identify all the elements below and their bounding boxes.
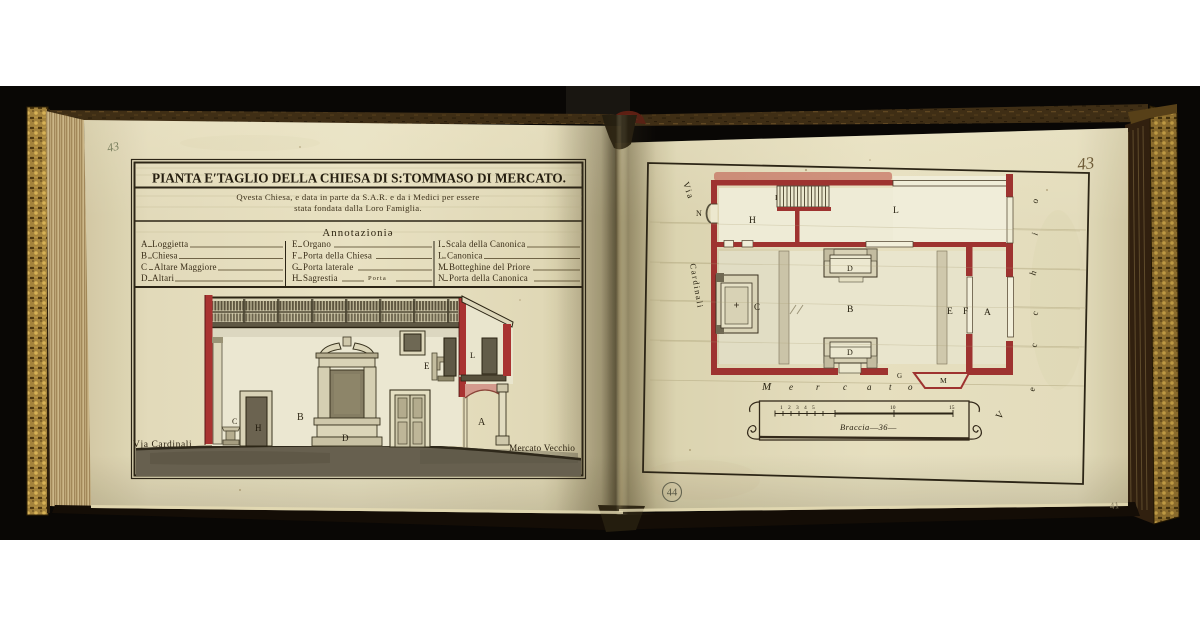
svg-text:M: M (940, 376, 947, 385)
svg-text:M: M (438, 262, 446, 272)
svg-text:H: H (255, 423, 262, 433)
svg-text:N: N (438, 273, 445, 283)
svg-text:2: 2 (788, 405, 791, 411)
svg-text:Porta della Chiesa: Porta della Chiesa (303, 251, 372, 261)
svg-text:M: M (761, 381, 772, 393)
svg-text:Scala della Canonica: Scala della Canonica (446, 239, 525, 249)
svg-text:stata fondata dalla Loro Famig: stata fondata dalla Loro Famiglia. (294, 203, 422, 213)
svg-text:c: c (843, 382, 847, 392)
svg-text:H: H (292, 273, 299, 283)
svg-text:5: 5 (812, 405, 815, 411)
svg-text:L: L (893, 206, 899, 216)
svg-text:B: B (847, 305, 853, 315)
svg-text:43: 43 (1076, 153, 1095, 174)
svg-text:Altari: Altari (152, 273, 174, 283)
svg-text:B: B (141, 251, 147, 261)
svg-text:Chiesa: Chiesa (152, 251, 178, 261)
svg-text:Vja Cardinali: Vja Cardinali (133, 440, 192, 450)
svg-text:G: G (897, 372, 902, 380)
svg-text:G: G (292, 262, 299, 272)
svg-text:A: A (141, 239, 148, 249)
svg-text:I: I (438, 239, 441, 249)
svg-text:1: 1 (780, 405, 783, 411)
svg-text:C: C (232, 417, 237, 426)
svg-text:A: A (984, 308, 991, 318)
svg-text:B: B (297, 412, 304, 423)
svg-text:15: 15 (949, 405, 955, 411)
svg-text:Braccia―36―: Braccia―36― (840, 422, 897, 432)
svg-text:4: 4 (804, 405, 807, 411)
svg-text:41: 41 (1109, 501, 1120, 512)
svg-text:E: E (947, 307, 953, 317)
svg-text:E: E (424, 361, 430, 371)
svg-text:Canonica: Canonica (447, 251, 483, 261)
svg-text:3: 3 (796, 405, 799, 411)
svg-text:Loggietta: Loggietta (152, 239, 188, 249)
svg-text:D: D (141, 273, 148, 283)
svg-text:N: N (696, 209, 702, 218)
svg-text:Qvesta Chiesa, e data in parte: Qvesta Chiesa, e data in parte da S.A.R.… (236, 192, 479, 202)
svg-text:Altare Maggiore: Altare Maggiore (154, 262, 217, 272)
svg-text:C: C (141, 262, 147, 272)
svg-text:Mercato Vecchio: Mercato Vecchio (509, 444, 575, 454)
svg-text:F: F (292, 251, 297, 261)
svg-text:10: 10 (890, 405, 896, 411)
svg-text:Organo: Organo (303, 239, 331, 249)
svg-text:C: C (754, 302, 760, 312)
svg-text:A: A (478, 417, 486, 428)
svg-text:PIANTA E′TAGLIO DELLA CHIESA D: PIANTA E′TAGLIO DELLA CHIESA DI S:TOMMAS… (152, 171, 566, 186)
svg-text:Porta: Porta (368, 275, 387, 282)
svg-text:e: e (789, 382, 793, 392)
svg-text:a: a (867, 382, 872, 392)
svg-text:Porta della Canonica: Porta della Canonica (449, 273, 528, 283)
svg-text:F: F (963, 307, 968, 317)
svg-text:o: o (908, 382, 913, 392)
svg-text:Sagrestia: Sagrestia (303, 273, 338, 283)
svg-text:44: 44 (667, 488, 678, 499)
svg-text:Porta laterale: Porta laterale (303, 262, 354, 272)
svg-text:D: D (847, 348, 853, 357)
svg-text:D: D (342, 433, 349, 443)
svg-text:Annotazioniə: Annotazioniə (322, 227, 393, 239)
svg-text:r: r (816, 382, 820, 392)
svg-text:E: E (292, 239, 298, 249)
svg-text:L: L (470, 350, 475, 360)
svg-text:L: L (438, 251, 444, 261)
svg-text:Botteghine del Priore: Botteghine del Priore (449, 262, 530, 272)
